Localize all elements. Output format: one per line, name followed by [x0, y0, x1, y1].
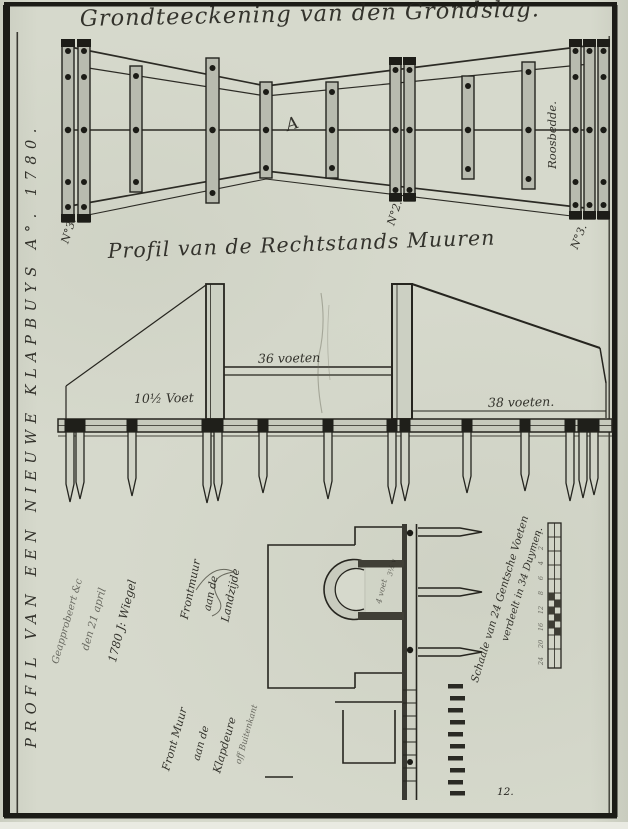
profile-title: Profil van de Rechtstands Muuren	[106, 225, 495, 263]
scale-tick: 24	[537, 657, 545, 666]
plan-marker-a: A	[281, 113, 301, 136]
scale-tick: 6	[537, 576, 545, 580]
profile-dim-right: 38 voeten.	[488, 394, 555, 410]
approval-line2: den 21 april	[79, 587, 108, 652]
approval-line3: 1780 J: Wiegel	[105, 578, 139, 664]
plan-beam-no-mid: N°2.	[384, 199, 405, 228]
side-sheet-title: PROFIL VAN EEN NIEUWE KLAPBUYS A°. 1780.	[24, 122, 40, 749]
front-sea-line3: Klapdeure	[210, 715, 239, 776]
plan-beam-no-right: N°3.	[568, 222, 590, 252]
plan-rosebed-label: Roosbedde.	[545, 101, 559, 170]
profile-dim-left: 10½ Voet	[134, 390, 195, 406]
front-land-line2: aan de	[201, 575, 220, 612]
front-land-line1: Frontmuur	[178, 557, 204, 621]
scale-bar	[548, 523, 561, 668]
front-sea-label: Front Muur aan de Klapdeure off Buitenka…	[159, 703, 260, 776]
front-land-label: Frontmuur aan de Landzijde	[178, 557, 243, 624]
profile-dim-middle: 36 voeten	[258, 350, 321, 366]
scale-tick: 8	[537, 591, 545, 595]
scale-tick: 20	[537, 640, 545, 649]
engraving-canvas: PROFIL VAN EEN NIEUWE KLAPBUYS A°. 1780.…	[0, 0, 628, 829]
front-sea-line4: off Buitenkant	[234, 703, 261, 765]
approval-line1: Geapprobeert &c	[50, 577, 85, 665]
front-sea-line1: Front Muur	[159, 705, 190, 773]
front-sea-line2: aan de	[190, 724, 211, 761]
scale-tick: 16	[537, 623, 545, 631]
scale-tick: 4	[537, 561, 545, 566]
page-number: 12.	[497, 786, 514, 798]
plan-title: Grondteeckening van den Grondslag.	[80, 0, 541, 32]
arch-dim-1: 4 voet	[374, 577, 389, 605]
scale-tick: 12	[537, 606, 545, 614]
scanned-drawing-sheet: PROFIL VAN EEN NIEUWE KLAPBUYS A°. 1780.…	[0, 0, 628, 822]
wall-plan-detail	[265, 524, 482, 800]
